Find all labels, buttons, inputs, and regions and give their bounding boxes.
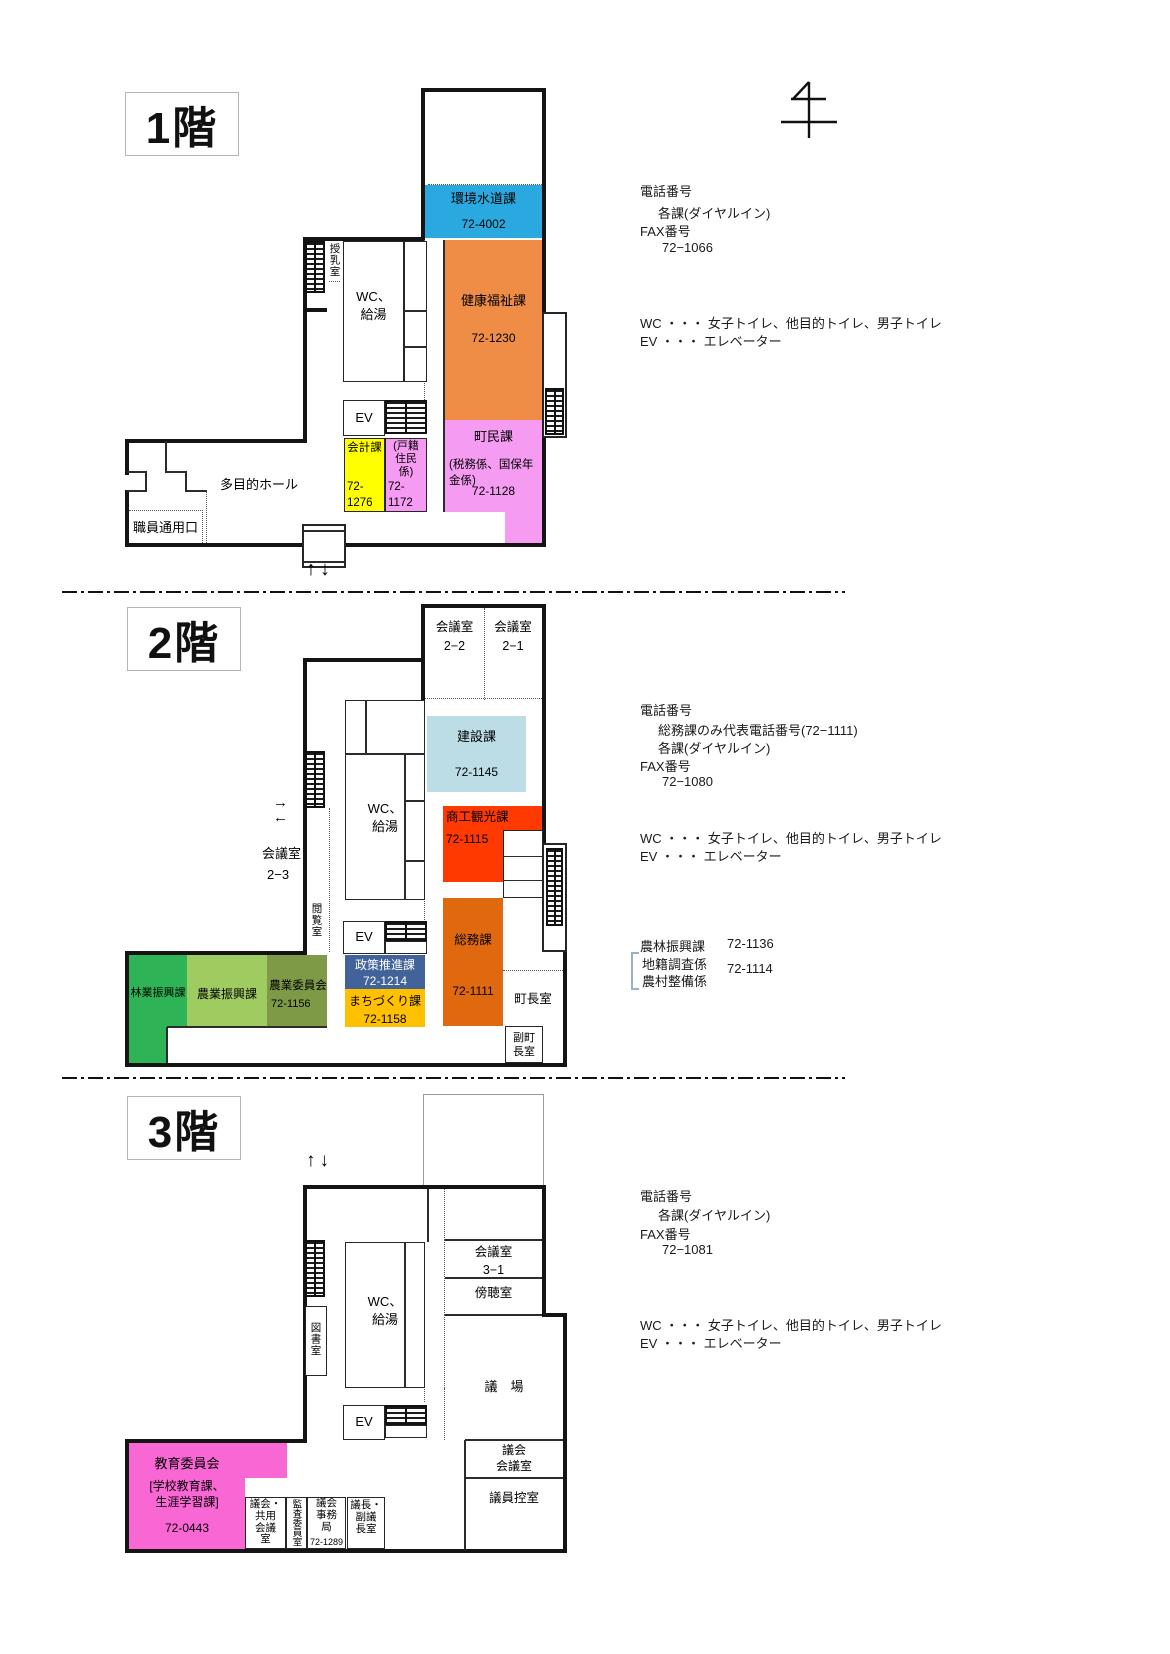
room-label-kansa: 監査委員室 — [291, 1499, 301, 1547]
step-wall — [165, 441, 167, 473]
room-label-noi: 農業委員会 — [267, 979, 329, 995]
room-label-kankyo: 環境水道課 — [425, 190, 542, 208]
wall — [125, 439, 307, 443]
room-tel-jimu: 72-1289 — [307, 1536, 346, 1548]
phone-line: 各課(ダイヤルイン) — [658, 738, 770, 757]
thin-wall — [365, 700, 367, 754]
stairs-hatch — [545, 388, 564, 435]
wc-label: WC、 給湯 — [345, 800, 425, 835]
room-sub-kyoiku: [学校教育課、 生涯学習課] — [129, 1478, 245, 1510]
room-label-somu: 総務課 — [443, 932, 503, 949]
arrow-left: ← — [273, 810, 288, 825]
elevator-label: EV — [343, 409, 385, 427]
dotted-line — [425, 698, 542, 699]
thin-wall — [465, 1477, 563, 1479]
wall — [563, 948, 567, 1067]
step-wall — [165, 471, 187, 473]
room-label-seisaku: 政策推進課 — [345, 957, 425, 973]
wall — [303, 1185, 546, 1189]
room-label-kensetsu: 建設課 — [427, 728, 526, 746]
stairs-hatch — [385, 1405, 427, 1425]
room-label-kaigi22: 会議室 2−2 — [425, 618, 484, 656]
room-tel-kenko: 72-1230 — [445, 330, 542, 346]
staff-entrance-label: 職員通用口 — [133, 519, 198, 537]
dotted-line — [444, 1388, 445, 1440]
elevator-label: EV — [343, 928, 385, 946]
thin-wall — [443, 240, 445, 512]
alcove-wall — [127, 471, 147, 473]
room-label-jimu: 議会 事務 局 — [307, 1498, 346, 1533]
thin-wall — [167, 1026, 327, 1028]
toilet-cells — [404, 241, 427, 382]
wc-note: WC ・・・ 女子トイレ、他目的トイレ、男子トイレ — [640, 1315, 942, 1334]
room-label-bocho: 傍聴室 — [445, 1285, 542, 1302]
tosho-label: 図書室 — [310, 1322, 321, 1357]
thin-wall — [345, 753, 425, 755]
room-tel-koseki: 72- 1172 — [388, 480, 413, 511]
room-tel-somu: 72-1111 — [443, 983, 503, 999]
room-label-gikai-kaigi: 議会 会議室 — [465, 1443, 563, 1474]
junyu-label: 授乳室 — [329, 243, 340, 282]
small-cells — [385, 1425, 427, 1438]
wall — [125, 490, 129, 547]
room-tel-noi: 72-1156 — [271, 997, 311, 1012]
room-label-kenko: 健康福祉課 — [445, 292, 542, 310]
stairs-hatch — [385, 921, 427, 941]
room-label-machizukuri: まちづくり課 — [345, 993, 425, 1009]
room-shoko-ext — [443, 856, 504, 882]
wall — [125, 1549, 567, 1553]
wall — [303, 658, 425, 662]
norin-tel: 72-1136 — [727, 936, 774, 951]
wc-note: WC ・・・ 女子トイレ、他目的トイレ、男子トイレ — [640, 313, 942, 332]
stairs-hatch — [305, 751, 325, 808]
stairs-hatch — [546, 848, 563, 926]
small-cells — [385, 941, 427, 954]
thin-wall — [465, 1439, 563, 1441]
floor-guide-page: 1階 環境水道課 72-4002 健康福祉課 — [0, 0, 1170, 1654]
ev-note: EV ・・・ エレベーター — [640, 1333, 782, 1352]
room-label-shoko: 商工観光課 — [446, 809, 509, 826]
wall — [542, 1185, 546, 1317]
ev-note: EV ・・・ エレベーター — [640, 846, 782, 865]
dotted-line — [329, 808, 330, 952]
phone-label: 電話番号 — [640, 1186, 692, 1205]
room-label-kaigi21: 会議室 2−1 — [484, 618, 542, 656]
phone-label: 電話番号 — [640, 700, 692, 719]
dotted-line — [129, 510, 203, 511]
group-bracket — [631, 952, 639, 990]
floor-divider — [62, 1077, 845, 1079]
wc-note: WC ・・・ 女子トイレ、他目的トイレ、男子トイレ — [640, 828, 942, 847]
wall — [542, 604, 546, 704]
room-label-gicho: 議長・ 副議 長室 — [347, 1500, 385, 1535]
room-label-gijo: 議 場 — [445, 1378, 563, 1396]
thin-wall — [404, 310, 427, 312]
wall — [542, 434, 546, 547]
dotted-line — [444, 1189, 445, 1240]
fax-number: 72−1066 — [662, 240, 713, 255]
room-chomin-ext — [505, 512, 542, 543]
dotted-line — [503, 970, 563, 971]
stairs-hatch — [305, 1240, 325, 1297]
arrow-right: → — [273, 795, 288, 810]
room-ringyo-ext — [129, 1027, 167, 1063]
wall — [125, 1063, 567, 1067]
room-label-kaigi31: 会議室 3−1 — [445, 1243, 542, 1279]
wall — [542, 700, 546, 846]
phone-label: 電話番号 — [640, 181, 692, 200]
room-somu — [443, 898, 503, 1026]
wall — [125, 439, 129, 475]
wall — [125, 951, 307, 955]
room-tel-kaikei: 72- 1276 — [347, 480, 373, 511]
alcove-wall — [127, 490, 147, 492]
tower-shaft — [423, 1094, 544, 1186]
thin-wall — [404, 346, 427, 348]
door-line — [304, 530, 344, 532]
floor2-title: 2階 — [127, 607, 241, 671]
phone-line: 各課(ダイヤルイン) — [658, 1205, 770, 1224]
room-tel-kankyo: 72-4002 — [425, 216, 542, 232]
fax-label: FAX番号 — [640, 221, 691, 240]
wall — [125, 951, 129, 1067]
room-tel-machizukuri: 72-1158 — [345, 1011, 425, 1027]
wc-label: WC、 給湯 — [343, 288, 404, 323]
thin-wall — [404, 860, 425, 862]
thin-wall — [503, 856, 543, 857]
room-tel-chomin: 72-1128 — [445, 483, 542, 499]
room-label-nogyo: 農業振興課 — [187, 986, 267, 1002]
room-label-chomin: 町民課 — [445, 428, 542, 446]
room-label-kaigi23-num: 2−3 — [267, 866, 289, 884]
small-cells — [503, 830, 543, 898]
room-kyoiku-ext — [245, 1443, 287, 1478]
room-label-kyoiku: 教育委員会 — [129, 1455, 245, 1473]
fax-label: FAX番号 — [640, 756, 691, 775]
dotted-line — [428, 184, 542, 185]
north-arrow-icon — [778, 76, 840, 142]
wall — [421, 88, 546, 92]
ev-note: EV ・・・ エレベーター — [640, 331, 782, 350]
etsuran-label: 閲覧室 — [311, 903, 322, 938]
hall-label: 多目的ホール — [220, 476, 298, 494]
room-tel-shoko: 72-1115 — [446, 831, 488, 847]
wall — [125, 1439, 307, 1443]
fax-number: 72−1081 — [662, 1242, 713, 1257]
fax-number: 72−1080 — [662, 774, 713, 789]
chiseki-tel: 72-1114 — [727, 961, 773, 976]
step-wall — [185, 490, 207, 492]
phone-line: 各課(ダイヤルイン) — [658, 203, 770, 222]
thin-wall — [427, 1189, 429, 1242]
room-label-koseki: (戸籍 住民 係) — [385, 440, 427, 480]
room-tel-kyoiku: 72-0443 — [129, 1520, 245, 1536]
room-label-giin: 議員控室 — [465, 1490, 563, 1507]
norin-label: 農林振興課 — [640, 936, 705, 955]
room-tel-seisaku: 72-1214 — [345, 973, 425, 989]
phone-line: 総務課のみ代表電話番号(72−1111) — [658, 720, 858, 739]
updown-arrows: ↑↓ — [306, 556, 334, 583]
thin-wall — [445, 1239, 542, 1241]
dotted-line — [202, 510, 203, 543]
wall — [542, 88, 546, 316]
dotted-line — [206, 492, 207, 543]
room-label-fuku: 副町 長室 — [505, 1031, 543, 1060]
floor-divider — [62, 591, 845, 593]
wall — [563, 1313, 567, 1553]
room-label-kyoyo: 議会・ 共用 会議 室 — [245, 1499, 286, 1546]
wc-label: WC、 給湯 — [345, 1293, 425, 1328]
floor3-title: 3階 — [127, 1096, 241, 1160]
thin-wall — [445, 1314, 542, 1316]
room-label-chocho: 町長室 — [503, 991, 563, 1008]
updown-arrows: ↑↓ — [306, 1148, 333, 1174]
thin-wall — [166, 1027, 168, 1063]
thin-wall — [503, 880, 543, 881]
elevator-label: EV — [343, 1413, 385, 1431]
noson-label: 農村整備係 — [642, 971, 707, 990]
floor1-title: 1階 — [125, 92, 239, 156]
room-label-kaikei: 会計課 — [344, 441, 385, 457]
room-label-ringyo: 林業振興課 — [129, 986, 187, 1001]
room-label-kaigi23: 会議室 — [262, 845, 301, 863]
wall — [303, 308, 327, 312]
room-tel-kensetsu: 72-1145 — [427, 764, 526, 780]
fax-label: FAX番号 — [640, 1224, 691, 1243]
stairs-hatch — [385, 400, 427, 434]
stairs-hatch — [305, 241, 325, 293]
